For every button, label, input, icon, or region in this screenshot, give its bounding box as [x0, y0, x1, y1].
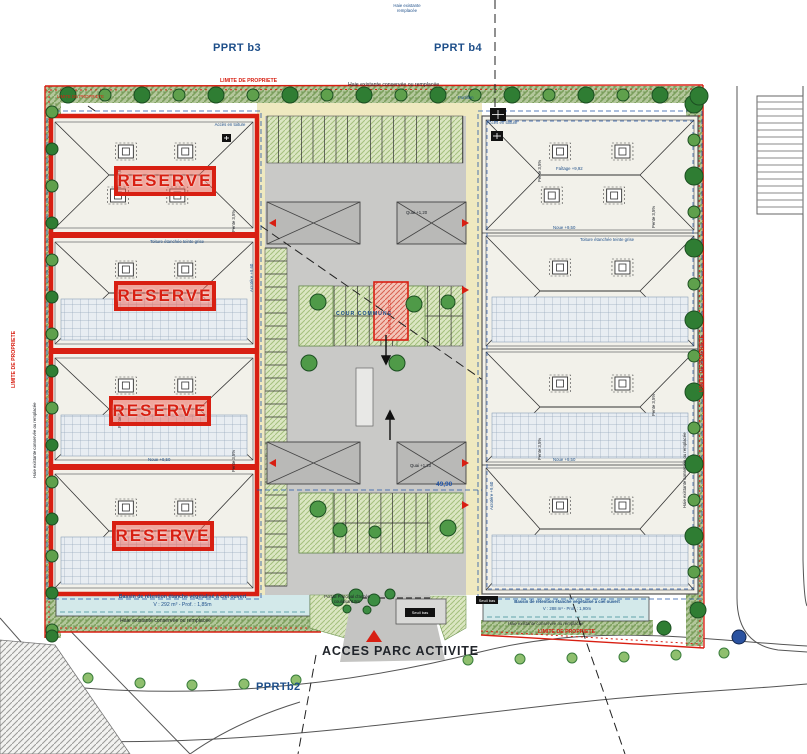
acrotere-right: Acrotère +9,60 — [490, 482, 495, 510]
reserve-box: RESERVE — [114, 166, 216, 196]
site-plan-drawing — [0, 0, 807, 754]
tree-icon — [310, 294, 326, 310]
roof-note-left: Toiture étanchée teinte grise — [146, 240, 208, 245]
tree-icon — [343, 605, 351, 613]
tree-icon — [688, 422, 700, 434]
hedge-note-left: Haie existante conservée ou remplacée — [33, 403, 38, 478]
faitage-right: Faîtage +9,92 — [556, 167, 583, 172]
street-tree-icon — [719, 648, 729, 658]
reserve-label: RESERVE — [116, 526, 211, 546]
acces-toiture-left: Accès en toiture — [212, 123, 248, 128]
pprt-b2-label: PPRTb2 — [256, 681, 301, 694]
quai-label-1: Quai +1,20 — [406, 211, 427, 216]
tree-icon — [688, 134, 700, 146]
street-tree-icon — [567, 653, 577, 663]
tree-icon — [369, 526, 381, 538]
quai-label-2: Quai +1,20 — [410, 464, 431, 469]
tree-icon — [690, 602, 706, 618]
site-plan: Haie existante remplacée PPRT b3 PPRT b4… — [0, 0, 807, 754]
dimension-4990: 49,90 — [436, 481, 452, 488]
tree-icon — [363, 606, 371, 614]
acces-parc-label: ACCES PARC ACTIVITE — [322, 644, 479, 658]
tree-icon — [46, 180, 58, 192]
pente-label: Pente 3,5% — [232, 210, 237, 232]
street-tree-icon — [187, 680, 197, 690]
building-block-right — [478, 111, 702, 599]
hedge-note-top: Haie existante conservée ou remplacée — [348, 83, 439, 89]
basin-left-volume: V : 292 m³ - Prof. : 1,85m — [70, 603, 295, 609]
noue-right-1: Noue +9,50 — [553, 226, 575, 231]
street-tree-icon — [671, 650, 681, 660]
limite-propriete-top: LIMITE DE PROPRIETE — [220, 79, 277, 85]
tree-icon — [46, 476, 58, 488]
tree-icon — [46, 587, 58, 599]
tree-icon — [173, 89, 185, 101]
tree-icon — [46, 513, 58, 525]
portillon-label: Portillon — [458, 96, 474, 101]
roof-note-right: Toiture étanchée teinte grise — [576, 238, 638, 243]
tree-icon — [46, 550, 58, 562]
street-tree-icon — [619, 652, 629, 662]
pente-label: Pente 3,5% — [652, 394, 657, 416]
hedge-top-note: Haie existante remplacée — [383, 4, 431, 14]
pprt-b4-label: PPRT b4 — [434, 42, 482, 55]
limite-propriete-top-left: LIMITE DE PROPRIETE — [57, 95, 104, 100]
hedge-note-right: Haie existante conservée ou remplacée — [683, 433, 688, 508]
tree-icon — [504, 87, 520, 103]
acces-toiture-right: Accès en toiture — [484, 121, 520, 126]
tree-icon — [389, 355, 405, 371]
tree-icon — [46, 402, 58, 414]
hedge-note-bottom-left: Haie existante conservée ou remplacée — [120, 619, 260, 625]
tree-icon — [440, 520, 456, 536]
tree-icon — [301, 355, 317, 371]
tree-icon — [356, 87, 372, 103]
tree-icon — [578, 87, 594, 103]
tree-icon — [688, 278, 700, 290]
basin-right-title: Bassin de rétention étanche végétalisé à… — [488, 600, 646, 605]
seuil-label: Seuil bas — [479, 598, 495, 603]
bike-shelter-label: PARKING VELOS — [388, 299, 393, 334]
hedge-note-bottom-right: Haie existante conservée ou remplacée — [508, 622, 583, 627]
tree-icon — [690, 87, 708, 105]
tree-icon — [385, 589, 395, 599]
canopy-pad — [356, 368, 373, 426]
reserve-label: RESERVE — [118, 171, 213, 191]
tree-icon — [46, 254, 58, 266]
street-tree-icon — [135, 678, 145, 688]
reserve-label: RESERVE — [113, 401, 208, 421]
tree-icon — [617, 89, 629, 101]
tree-icon — [46, 106, 58, 118]
portail-label: Portail Principal d'accès coulissant 9m — [318, 595, 376, 605]
seuil-label: Seuil bas — [412, 610, 428, 615]
basin-left-title: Bassin de rétention étanche végétalisé à… — [70, 595, 295, 601]
tree-icon — [688, 566, 700, 578]
tree-icon — [406, 296, 422, 312]
reserve-box: RESERVE — [112, 521, 214, 551]
street-tree-icon — [239, 679, 249, 689]
seuil-chip: Seuil bas — [476, 596, 498, 604]
tree-icon — [208, 87, 224, 103]
tree-icon — [543, 89, 555, 101]
limite-propriete-left: LIMITE DE PROPRIETE — [12, 331, 18, 388]
basin-right-volume: V : 288 m³ - Prof. : 1,90m — [488, 607, 646, 612]
acrotere-left: Acrotère +9,60 — [250, 264, 255, 292]
tree-icon — [685, 311, 703, 329]
tree-icon — [134, 87, 150, 103]
street-tree-icon — [83, 673, 93, 683]
tree-icon — [46, 630, 58, 642]
tree-icon — [441, 295, 455, 309]
tree-icon — [46, 365, 58, 377]
reserve-label: RESERVE — [118, 286, 213, 306]
tree-icon — [395, 89, 407, 101]
pente-label: Pente 3,5% — [232, 450, 237, 472]
noue-left: Noue +9,50 — [148, 458, 170, 463]
tree-icon — [430, 87, 446, 103]
tree-icon — [688, 206, 700, 218]
tree-icon — [685, 167, 703, 185]
reserve-box: RESERVE — [114, 281, 216, 311]
tree-icon — [688, 494, 700, 506]
tree-icon — [333, 523, 347, 537]
limite-propriete-right: LIMITE DE PROPRIETE — [700, 335, 706, 392]
tree-icon — [46, 291, 58, 303]
pente-label: Pente 3,5% — [538, 438, 543, 460]
street-tree-icon — [515, 654, 525, 664]
tree-icon — [321, 89, 333, 101]
seuil-chip: Seuil bas — [405, 608, 435, 617]
tree-icon — [247, 89, 259, 101]
tree-icon — [652, 87, 668, 103]
tree-icon — [282, 87, 298, 103]
tree-icon — [310, 501, 326, 517]
tree-icon — [685, 527, 703, 545]
reserve-box: RESERVE — [109, 396, 211, 426]
pente-label: Pente 3,5% — [652, 206, 657, 228]
noue-right-2: Noue +9,50 — [553, 458, 575, 463]
tree-icon — [46, 328, 58, 340]
tree-icon — [46, 217, 58, 229]
pprt-b3-label: PPRT b3 — [213, 42, 261, 55]
tree-icon — [46, 439, 58, 451]
railway-crossing — [757, 96, 803, 214]
blue-marker-dot — [732, 630, 746, 644]
pente-label: Pente 3,5% — [538, 160, 543, 182]
tree-icon — [46, 143, 58, 155]
limite-propriete-bottom: LIMITE DE PROPRIETE — [538, 630, 595, 636]
cour-commune-label: COUR COMMUNE — [336, 312, 392, 318]
tree-icon — [657, 621, 671, 635]
tree-icon — [685, 239, 703, 257]
